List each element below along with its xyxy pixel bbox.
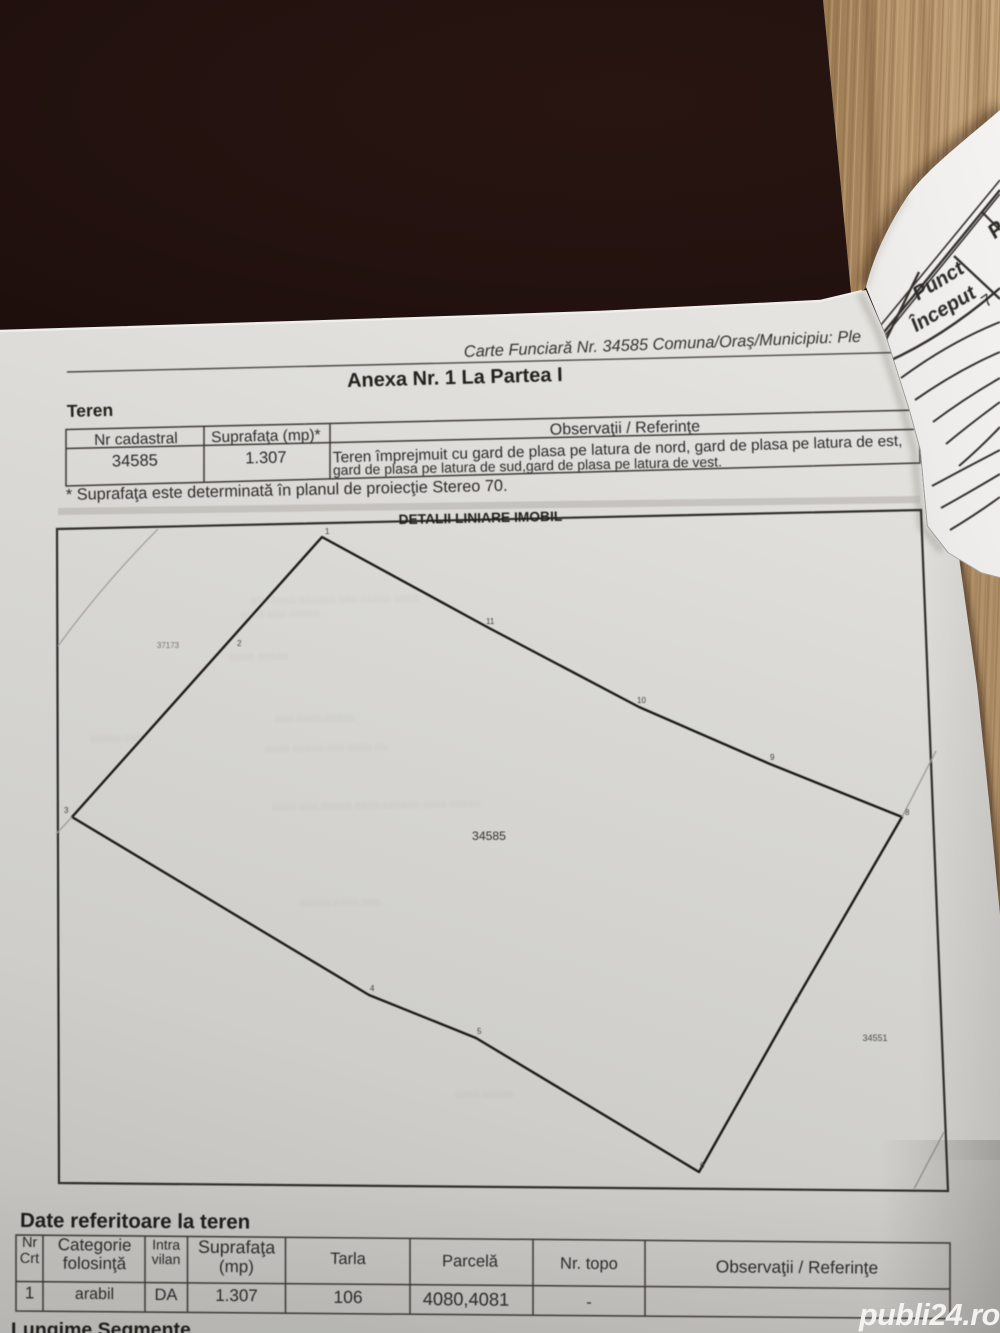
svg-text:4080,4081: 4080,4081: [423, 1288, 510, 1310]
svg-text:DA: DA: [154, 1286, 177, 1304]
svg-text:aaaa aaaaa: aaaa aaaaa: [230, 650, 289, 663]
svg-text:aaaaa aaaa aaa: aaaaa aaaa aaa: [300, 896, 381, 909]
svg-text:Suprafaţa: Suprafaţa: [198, 1237, 275, 1258]
svg-text:1: 1: [325, 527, 330, 536]
svg-text:aaaa aaaaa: aaaa aaaaa: [455, 1088, 514, 1101]
svg-text:aaaa aaa aaaaa: aaaa aaa aaaaa: [240, 608, 321, 621]
svg-text:aaa aaaa aaaaa: aaa aaaa aaaaa: [275, 712, 356, 725]
svg-text:Tarla: Tarla: [330, 1250, 367, 1268]
svg-text:Nr. topo: Nr. topo: [560, 1255, 618, 1273]
svg-text:37173: 37173: [157, 641, 180, 650]
svg-text:9: 9: [770, 753, 775, 762]
svg-text:Parcelă: Parcelă: [442, 1252, 499, 1270]
svg-text:publi24.ro: publi24.ro: [858, 1298, 1000, 1332]
svg-text:4: 4: [370, 984, 375, 993]
svg-text:Date referitoare la teren: Date referitoare la teren: [20, 1209, 250, 1234]
svg-text:arabil: arabil: [75, 1286, 114, 1303]
svg-text:-: -: [586, 1293, 592, 1311]
svg-text:1.307: 1.307: [245, 449, 287, 468]
svg-text:Observaţii / Referinţe: Observaţii / Referinţe: [716, 1256, 878, 1277]
svg-text:Nr: Nr: [22, 1235, 38, 1251]
svg-text:Crt: Crt: [20, 1251, 39, 1267]
svg-text:34551: 34551: [862, 1033, 887, 1043]
svg-text:11: 11: [486, 617, 495, 626]
svg-text:Teren: Teren: [67, 400, 114, 421]
svg-text:Lungime Segmente: Lungime Segmente: [11, 1319, 191, 1333]
svg-text:10: 10: [637, 696, 646, 705]
svg-text:Categorie: Categorie: [58, 1235, 132, 1255]
svg-text:Suprafaţa (mp)*: Suprafaţa (mp)*: [211, 427, 321, 446]
svg-text:34585: 34585: [112, 451, 158, 470]
svg-text:Nr cadastral: Nr cadastral: [94, 430, 178, 449]
svg-text:folosinţă: folosinţă: [63, 1254, 127, 1274]
svg-text:5: 5: [477, 1027, 482, 1036]
svg-text:Observaţii / Referinţe: Observaţii / Referinţe: [550, 418, 701, 438]
svg-text:(mp): (mp): [219, 1257, 254, 1276]
svg-text:1.307: 1.307: [215, 1286, 258, 1305]
svg-text:3: 3: [64, 806, 69, 815]
svg-text:6: 6: [700, 1161, 705, 1170]
svg-text:7: 7: [795, 996, 800, 1005]
svg-text:aaaa aaaaa aaa aaaa aa: aaaa aaaaa aaa aaaa aa: [265, 741, 388, 755]
svg-text:1: 1: [25, 1283, 35, 1302]
svg-text:2: 2: [237, 639, 242, 648]
svg-text:aaaaa aaa: aaaaa aaa: [90, 732, 143, 745]
svg-text:106: 106: [333, 1287, 362, 1307]
svg-text:vilan: vilan: [152, 1251, 181, 1267]
svg-text:8: 8: [905, 808, 910, 817]
svg-text:34585: 34585: [472, 829, 506, 843]
